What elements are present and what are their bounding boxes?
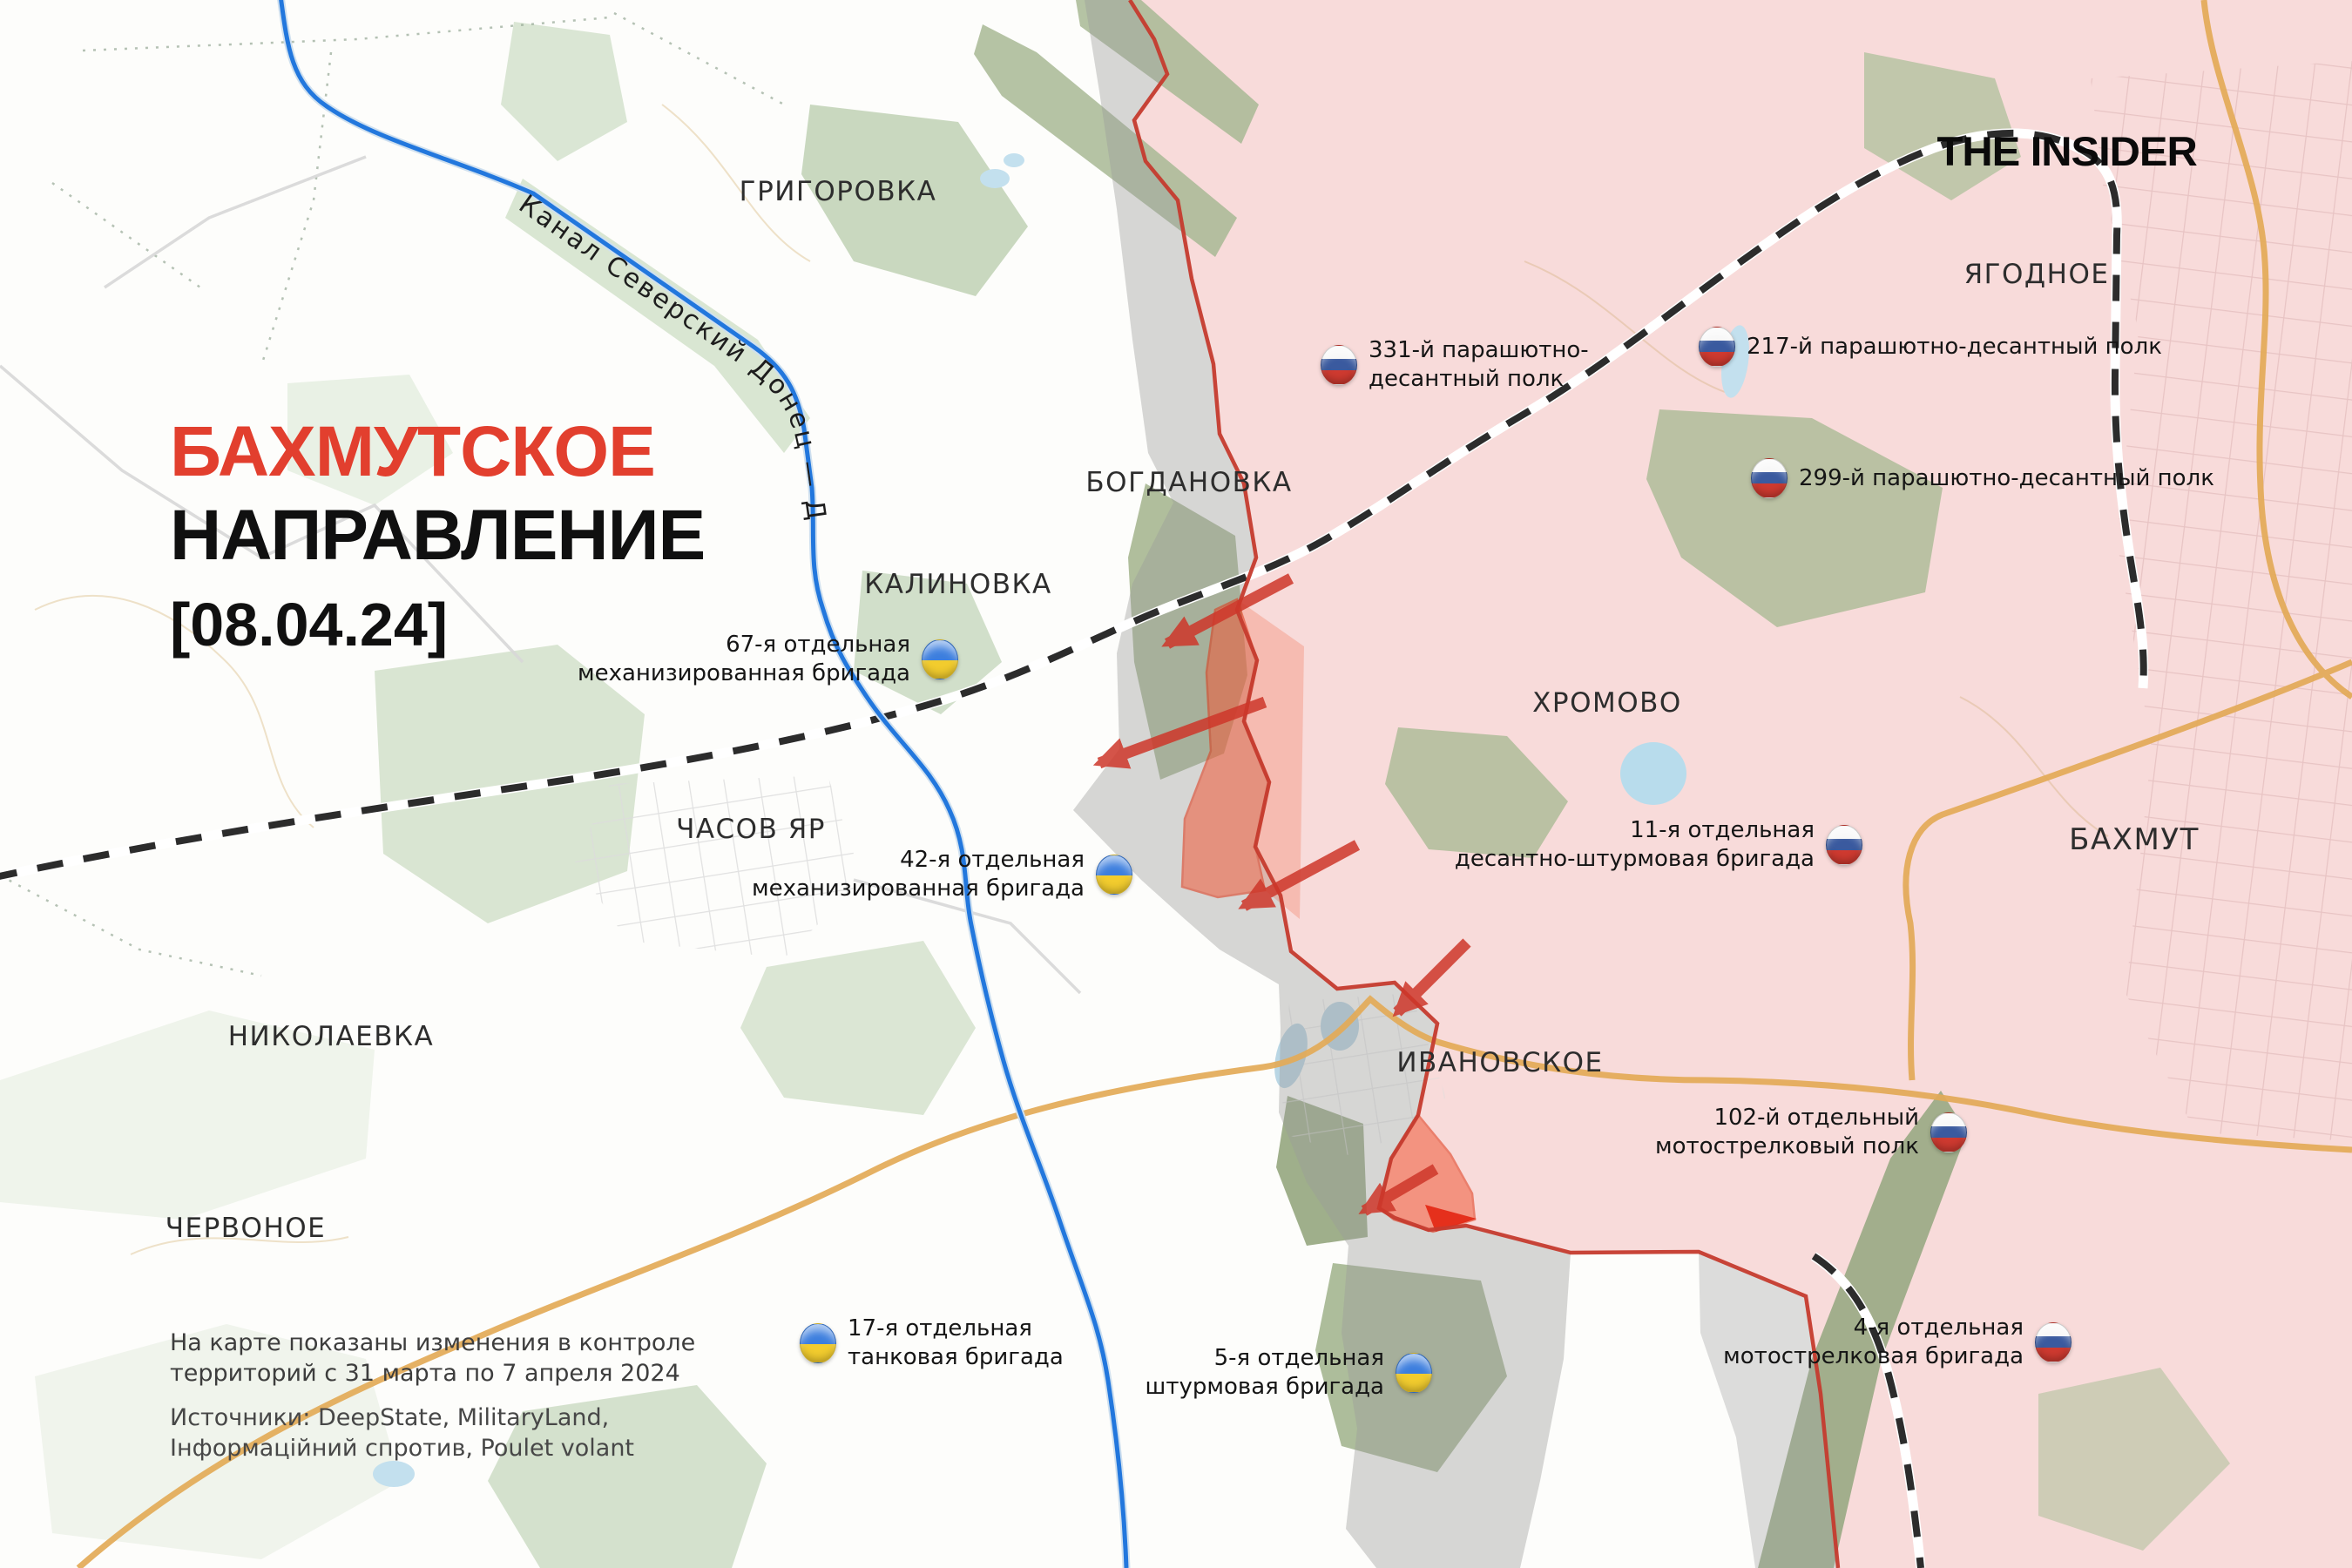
note-line-2: территорий с 31 марта по 7 апреля 2024 — [170, 1358, 695, 1389]
unit-label-text: 102-й отдельныймотострелковый полк — [1655, 1104, 1919, 1161]
ua-flag-icon — [800, 1323, 836, 1363]
unit-label-ru-4: 4-я отдельнаямотострелковая бригада — [1723, 1314, 2072, 1371]
sources-line-1: Источники: DeepState, MilitaryLand, — [170, 1402, 695, 1433]
ru-flag-icon — [1930, 1112, 1967, 1152]
unit-label-text: 67-я отдельнаямеханизированная бригада — [578, 631, 910, 688]
ru-flag-icon — [1826, 825, 1862, 865]
ua-flag-icon — [1096, 855, 1132, 895]
town-label-ивановское: ИВАНОВСКОЕ — [1396, 1047, 1603, 1078]
unit-label-ua-5: 5-я отдельнаяштурмовая бригада — [1146, 1344, 1432, 1402]
unit-label-text: 17-я отдельнаятанковая бригада — [848, 1315, 1064, 1372]
ua-flag-icon — [922, 639, 958, 679]
town-label-григоровка: ГРИГОРОВКА — [740, 176, 937, 207]
unit-label-text: 5-я отдельнаяштурмовая бригада — [1146, 1344, 1384, 1402]
unit-label-ru-11: 11-я отдельнаядесантно-штурмовая бригада — [1455, 816, 1862, 874]
ru-flag-icon — [1321, 345, 1357, 385]
unit-label-text: 331-й парашютно-десантный полк — [1369, 336, 1589, 394]
unit-label-text: 42-я отдельнаямеханизированная бригада — [752, 846, 1085, 903]
unit-label-ru-331: 331-й парашютно-десантный полк — [1321, 336, 1589, 394]
brand-logo: THE INSIDER — [1937, 127, 2197, 175]
unit-label-ua-42: 42-я отдельнаямеханизированная бригада — [752, 846, 1132, 903]
map: Канал Северский Донец — Донбасс THE INSI… — [0, 0, 2352, 1568]
unit-label-ru-102: 102-й отдельныймотострелковый полк — [1655, 1104, 1967, 1161]
town-label-ягодное: ЯГОДНОЕ — [1964, 259, 2110, 290]
town-label-часов-яр: ЧАСОВ ЯР — [676, 814, 826, 845]
unit-label-ru-217: 217-й парашютно-десантный полк — [1699, 327, 2162, 367]
unit-label-text: 11-я отдельнаядесантно-штурмовая бригада — [1455, 816, 1815, 874]
ua-flag-icon — [1396, 1353, 1432, 1393]
town-label-бахмут: БАХМУТ — [2069, 822, 2200, 857]
title-line-red: БАХМУТСКОЕ — [170, 416, 705, 488]
unit-label-ru-299: 299-й парашютно-десантный полк — [1751, 458, 2214, 498]
town-label-калиновка: КАЛИНОВКА — [864, 569, 1051, 600]
map-title: БАХМУТСКОЕ НАПРАВЛЕНИЕ [08.04.24] — [170, 416, 705, 655]
title-line-black: НАПРАВЛЕНИЕ — [170, 500, 705, 571]
town-label-николаевка: НИКОЛАЕВКА — [228, 1021, 435, 1052]
unit-label-ua-17: 17-я отдельнаятанковая бригада — [800, 1315, 1064, 1372]
town-label-хромово: ХРОМОВО — [1532, 687, 1682, 719]
unit-label-text: 217-й парашютно-десантный полк — [1747, 333, 2162, 362]
town-label-червоное: ЧЕРВОНОЕ — [166, 1213, 327, 1244]
ru-flag-icon — [2035, 1322, 2072, 1362]
unit-label-ua-67: 67-я отдельнаямеханизированная бригада — [578, 631, 958, 688]
town-label-богдановка: БОГДАНОВКА — [1085, 467, 1292, 498]
note-line-1: На карте показаны изменения в контроле — [170, 1328, 695, 1358]
unit-label-text: 4-я отдельнаямотострелковая бригада — [1723, 1314, 2024, 1371]
sources-line-2: Інформаційний спротив, Poulet volant — [170, 1433, 695, 1463]
map-note: На карте показаны изменения в контроле т… — [170, 1328, 695, 1463]
ru-flag-icon — [1751, 458, 1788, 498]
ru-flag-icon — [1699, 327, 1735, 367]
unit-label-text: 299-й парашютно-десантный полк — [1799, 464, 2214, 493]
